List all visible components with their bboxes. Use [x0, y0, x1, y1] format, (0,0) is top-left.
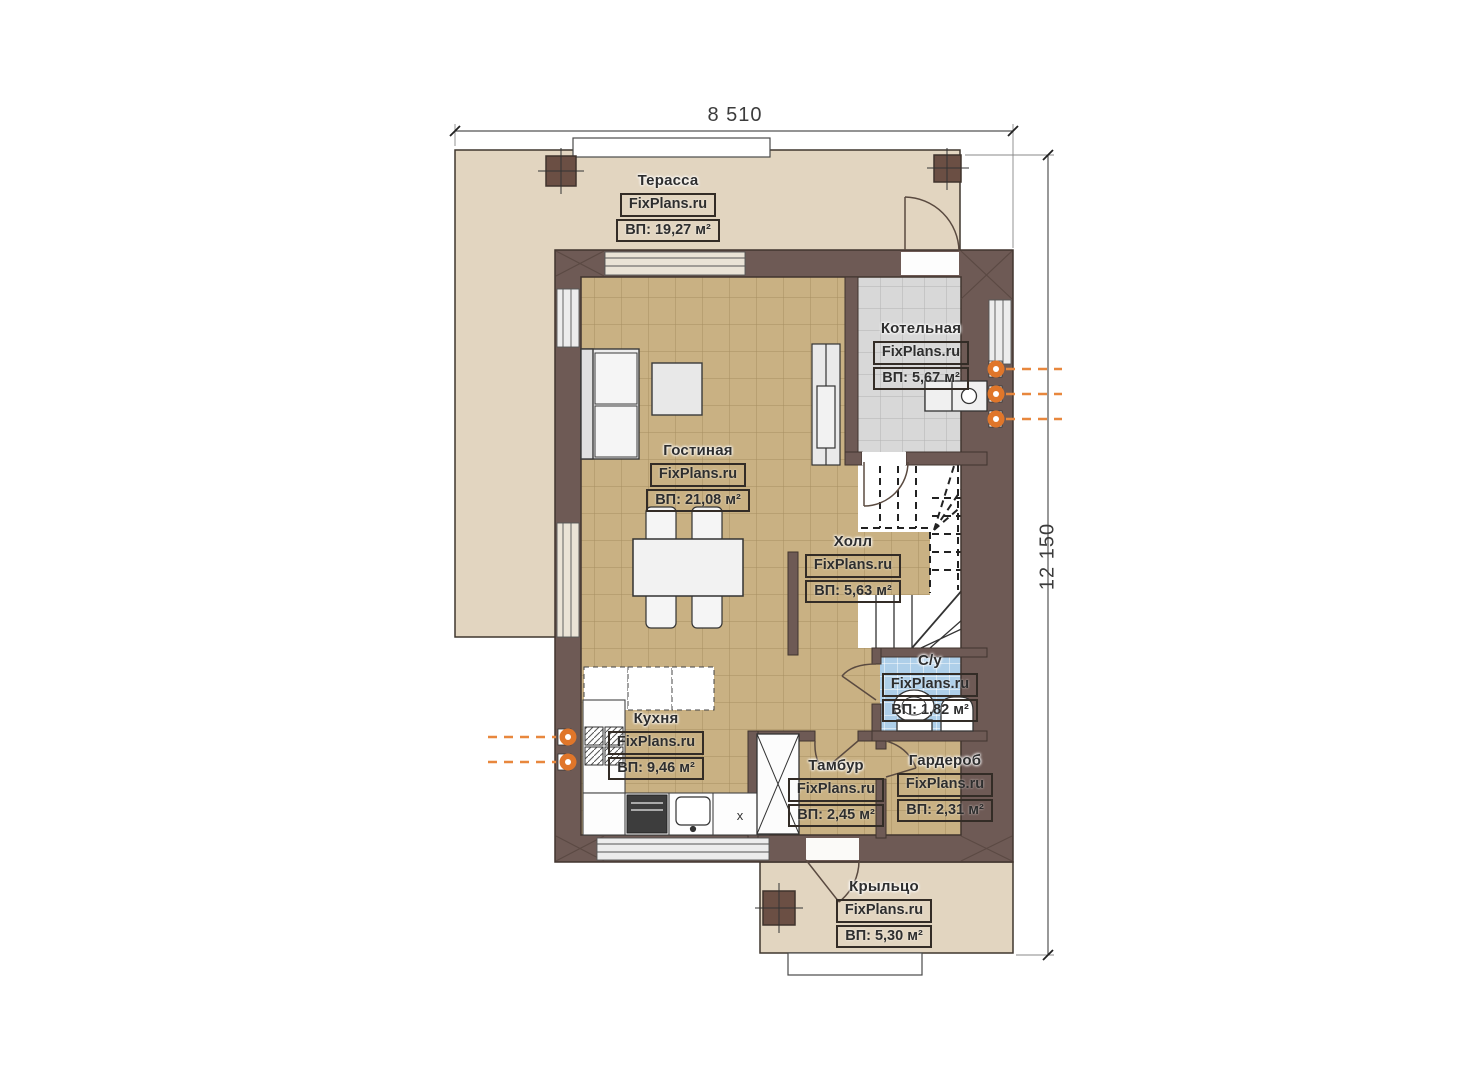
porch-step — [788, 953, 922, 975]
porch-floor — [760, 862, 1013, 975]
tv-cabinet — [812, 344, 840, 465]
boiler-unit — [925, 381, 987, 411]
bathroom-sink — [941, 697, 973, 731]
toilet — [894, 690, 934, 731]
bathroom-top-wall — [872, 648, 987, 657]
boiler-left-wall — [845, 277, 858, 462]
kitchen-corner-mark: x — [737, 808, 744, 823]
sofa — [581, 349, 639, 459]
terrace-glazed-door — [605, 252, 745, 275]
height-dimension-label: 12 150 — [1037, 517, 1060, 597]
floor-plan-drawing: x — [0, 0, 1473, 1080]
terrace-step — [573, 138, 770, 157]
utility-markers-right — [988, 361, 1063, 428]
living-hall-partition — [788, 552, 798, 655]
width-dimension-label: 8 510 — [690, 104, 780, 127]
floor-plan-canvas: x — [0, 0, 1473, 1080]
bathroom-bottom-wall — [872, 731, 987, 741]
living-window — [557, 289, 579, 347]
kitchen-window — [597, 838, 769, 860]
vestibule-wardrobe-wall — [876, 779, 886, 838]
dining-table — [633, 539, 743, 596]
boiler-window — [989, 300, 1011, 364]
closet-cabinet — [757, 734, 799, 834]
living-terrace-window — [557, 523, 579, 637]
oven-appliance — [627, 795, 667, 833]
coffee-table — [652, 363, 702, 415]
